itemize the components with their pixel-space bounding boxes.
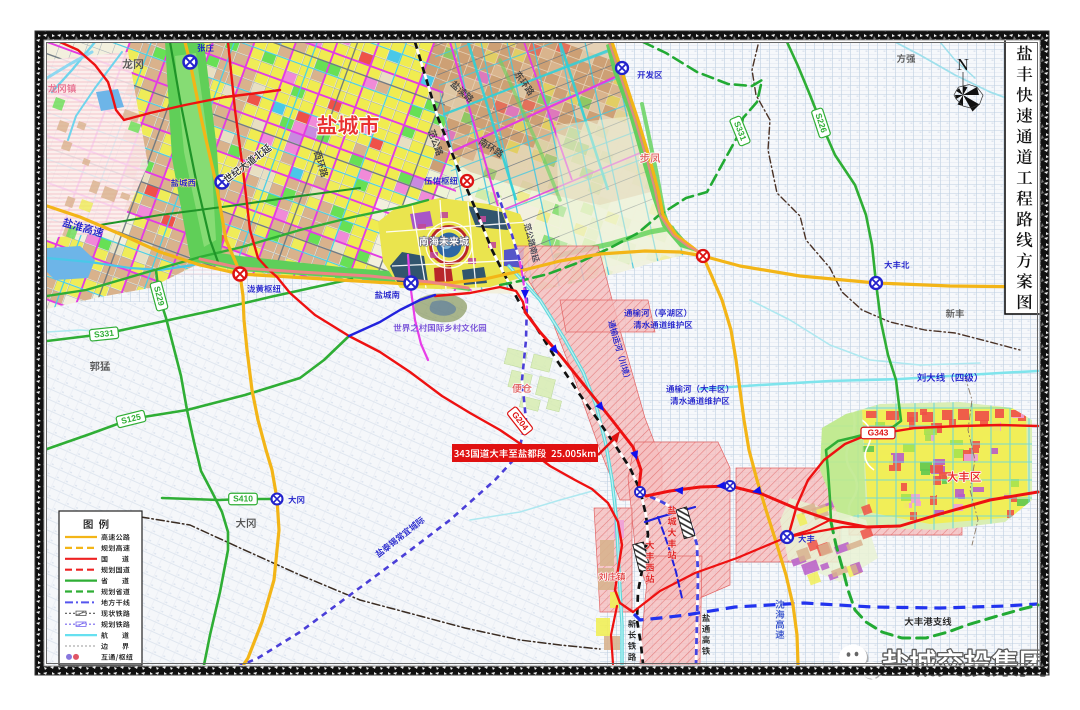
svg-text:S331: S331 [94,328,115,340]
svg-text:G343: G343 [868,428,889,438]
svg-text:S410: S410 [233,494,253,504]
